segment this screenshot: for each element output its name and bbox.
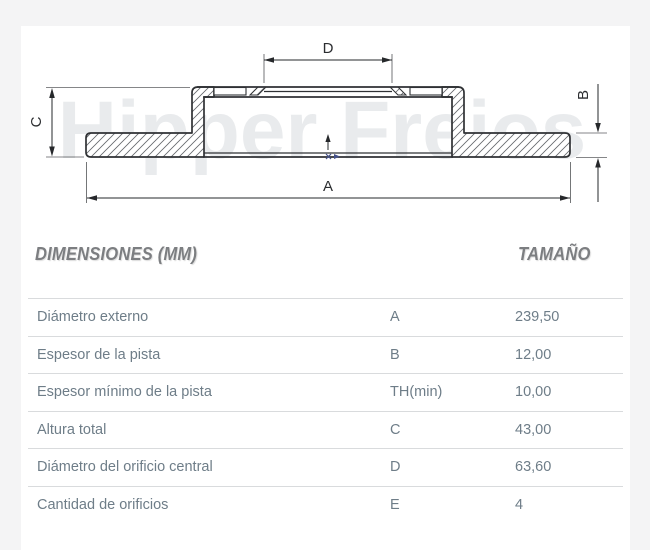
row-value: 4 xyxy=(515,497,623,513)
dim-label-c: C xyxy=(28,116,45,127)
row-value: 43,00 xyxy=(515,422,623,438)
row-label: Diámetro externo xyxy=(37,309,390,325)
table-row: Diámetro externo A 239,50 xyxy=(28,298,623,336)
dim-label-b: B xyxy=(575,90,592,100)
row-letter: C xyxy=(390,422,515,438)
row-value: 12,00 xyxy=(515,347,623,363)
row-label: Espesor mínimo de la pista xyxy=(37,384,390,400)
dim-a-arrow-right xyxy=(560,195,570,201)
row-label: Cantidad de orificios xyxy=(37,497,390,513)
table-row: Espesor de la pista B 12,00 xyxy=(28,336,623,374)
row-letter: TH(min) xyxy=(390,384,515,400)
dim-label-a: A xyxy=(323,178,333,195)
bolt-hole-left xyxy=(214,88,246,96)
table-row: Espesor mínimo de la pista TH(min) 10,00 xyxy=(28,373,623,411)
dim-b-arrow-top xyxy=(595,123,601,133)
row-letter: D xyxy=(390,459,515,475)
table-row: Altura total C 43,00 xyxy=(28,411,623,449)
bolt-hole-right xyxy=(410,88,442,96)
row-label: Espesor de la pista xyxy=(37,347,390,363)
dim-d-arrow-right xyxy=(382,57,392,63)
watermark-text: Hipper Freios xyxy=(58,85,587,176)
table-header: DIMENSIONES (MM) TAMAÑO xyxy=(21,244,630,266)
dim-b-arrow-bottom xyxy=(595,158,601,168)
dim-d-extension-lines xyxy=(264,54,392,83)
size-header-label: TAMAÑO xyxy=(518,244,591,265)
row-letter: B xyxy=(390,347,515,363)
dim-a-arrow-left xyxy=(87,195,97,201)
row-value: 239,50 xyxy=(515,309,623,325)
table-row: Cantidad de orificios E 4 xyxy=(28,486,623,524)
dim-label-d: D xyxy=(323,40,334,57)
dimensions-table: Diámetro externo A 239,50 Espesor de la … xyxy=(28,298,623,523)
row-value: 63,60 xyxy=(515,459,623,475)
table-row: Diámetro del orificio central D 63,60 xyxy=(28,448,623,486)
spec-sheet-card: Hipper Freios D xyxy=(21,26,630,550)
row-label: Diámetro del orificio central xyxy=(37,459,390,475)
dimensions-header-label: DIMENSIONES (MM) xyxy=(35,244,197,265)
brake-disc-diagram: Hipper Freios D xyxy=(21,26,630,230)
row-letter: A xyxy=(390,309,515,325)
row-value: 10,00 xyxy=(515,384,623,400)
dim-c-arrow-top xyxy=(49,88,55,98)
row-label: Altura total xyxy=(37,422,390,438)
row-letter: E xyxy=(390,497,515,513)
dim-d-arrow-left xyxy=(264,57,274,63)
dim-c-arrow-bottom xyxy=(49,147,55,157)
